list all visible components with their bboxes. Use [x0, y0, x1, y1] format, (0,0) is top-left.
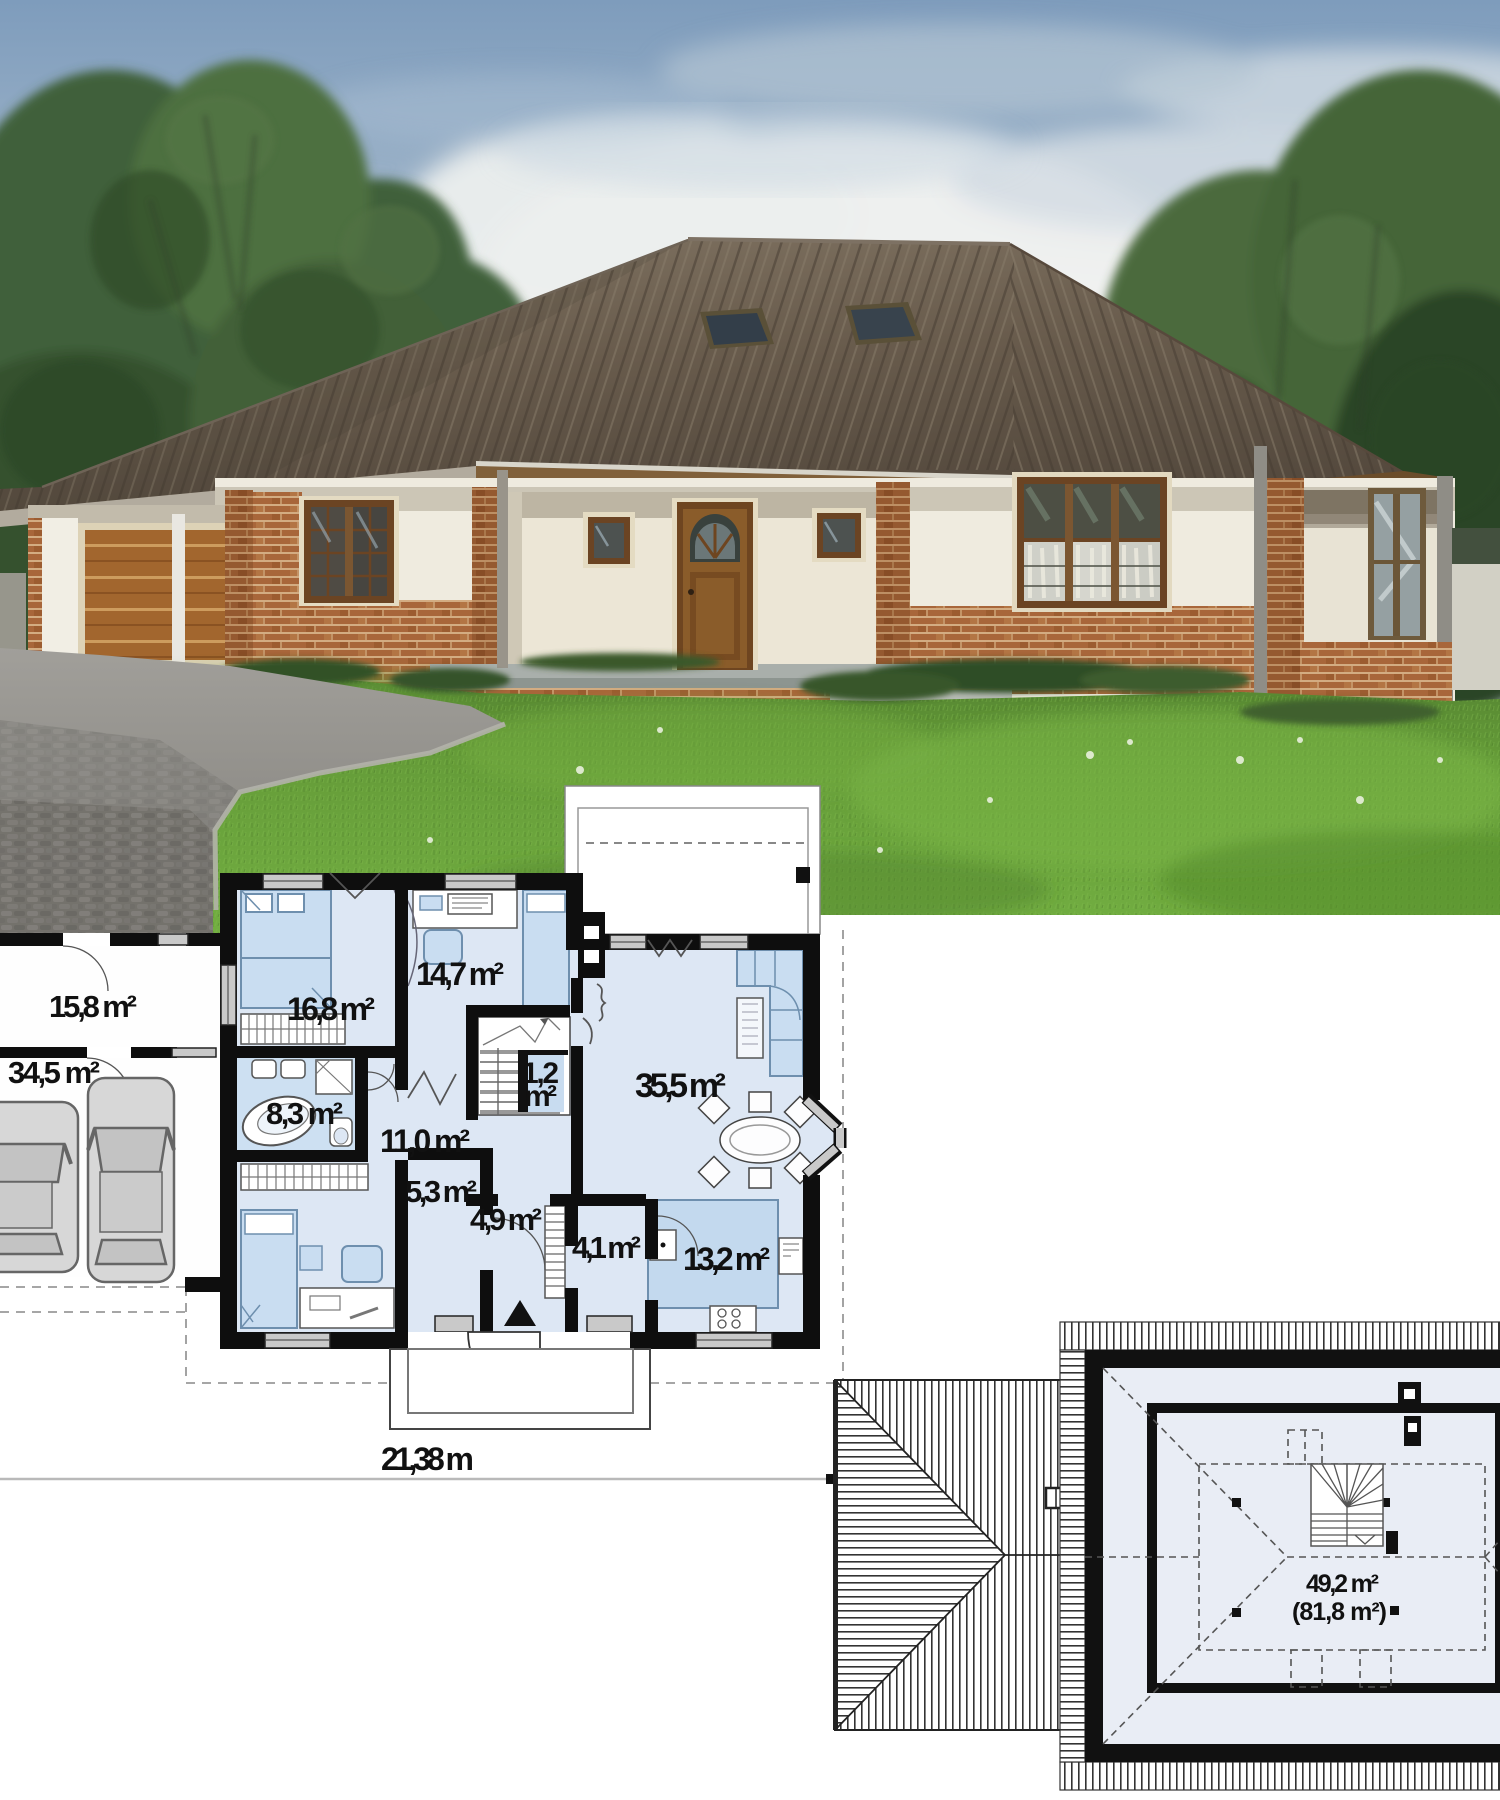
svg-text:m²: m² [524, 1080, 557, 1113]
svg-text:16,8 m²: 16,8 m² [287, 991, 375, 1027]
svg-text:13,2 m²: 13,2 m² [683, 1241, 770, 1277]
svg-text:35,5 m²: 35,5 m² [635, 1067, 726, 1105]
svg-text:49,2 m²: 49,2 m² [1306, 1570, 1379, 1598]
svg-text:15,8 m²: 15,8 m² [49, 989, 137, 1024]
svg-text:34,5 m²: 34,5 m² [8, 1055, 100, 1090]
svg-text:21,38 m: 21,38 m [381, 1441, 474, 1477]
svg-text:4,9 m²: 4,9 m² [470, 1202, 542, 1237]
svg-text:(81,8 m²): (81,8 m²) [1292, 1598, 1387, 1626]
svg-text:14,7 m²: 14,7 m² [416, 956, 504, 992]
svg-text:4,1 m²: 4,1 m² [572, 1230, 641, 1265]
svg-text:8,3 m²: 8,3 m² [266, 1096, 343, 1131]
svg-text:11,0 m²: 11,0 m² [380, 1123, 470, 1159]
svg-text:5,3 m²: 5,3 m² [405, 1174, 477, 1209]
